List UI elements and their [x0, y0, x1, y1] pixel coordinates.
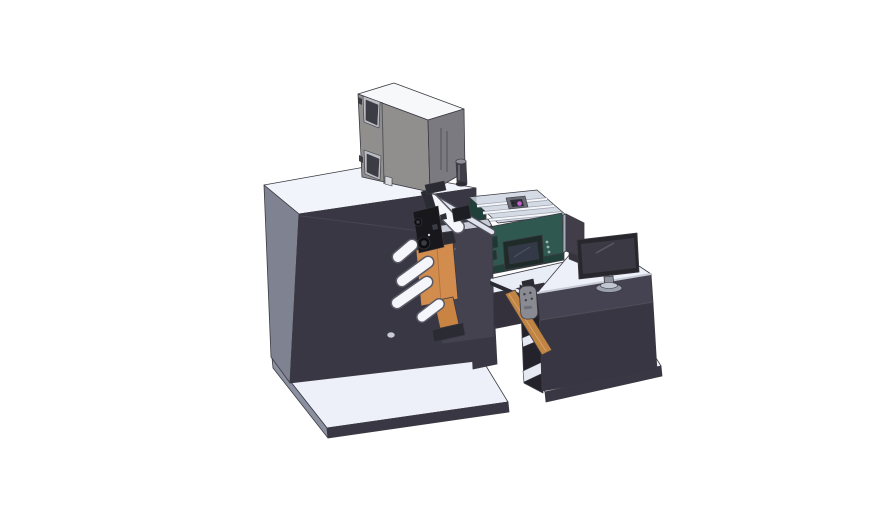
- mech-hub-small-inner: [416, 220, 420, 224]
- magenta-ink-dot: [517, 201, 522, 206]
- cad-render-canvas: machine base platform main machine cabin…: [0, 0, 888, 522]
- monitor-screen[interactable]: [581, 238, 636, 274]
- hmi-button-2[interactable]: [547, 246, 550, 249]
- carriage-speck: [512, 202, 514, 204]
- panel-edge-strip: [563, 214, 566, 253]
- cabinet-fitting-hole: [387, 332, 395, 338]
- mech-hub-large-inner: [421, 240, 427, 246]
- mech-glint-dot: [428, 234, 430, 236]
- hopper-box: top-mounted hopper box: [358, 83, 467, 192]
- machine-scene: machine base platform main machine cabin…: [0, 0, 888, 522]
- filter-knob-cap: [456, 159, 466, 164]
- monitor-base-top: [601, 283, 618, 289]
- hmi-button-1[interactable]: [546, 241, 549, 244]
- filter-knob-body: [456, 162, 467, 183]
- mech-plate-1: [432, 224, 438, 230]
- filter-knob-base: [456, 182, 467, 186]
- box-foot-square: [385, 176, 392, 186]
- pendant-body[interactable]: [519, 285, 538, 319]
- hmi-button-3[interactable]: [548, 251, 551, 254]
- pendant-slot: [524, 306, 532, 310]
- tower-bolt-2: [454, 248, 456, 250]
